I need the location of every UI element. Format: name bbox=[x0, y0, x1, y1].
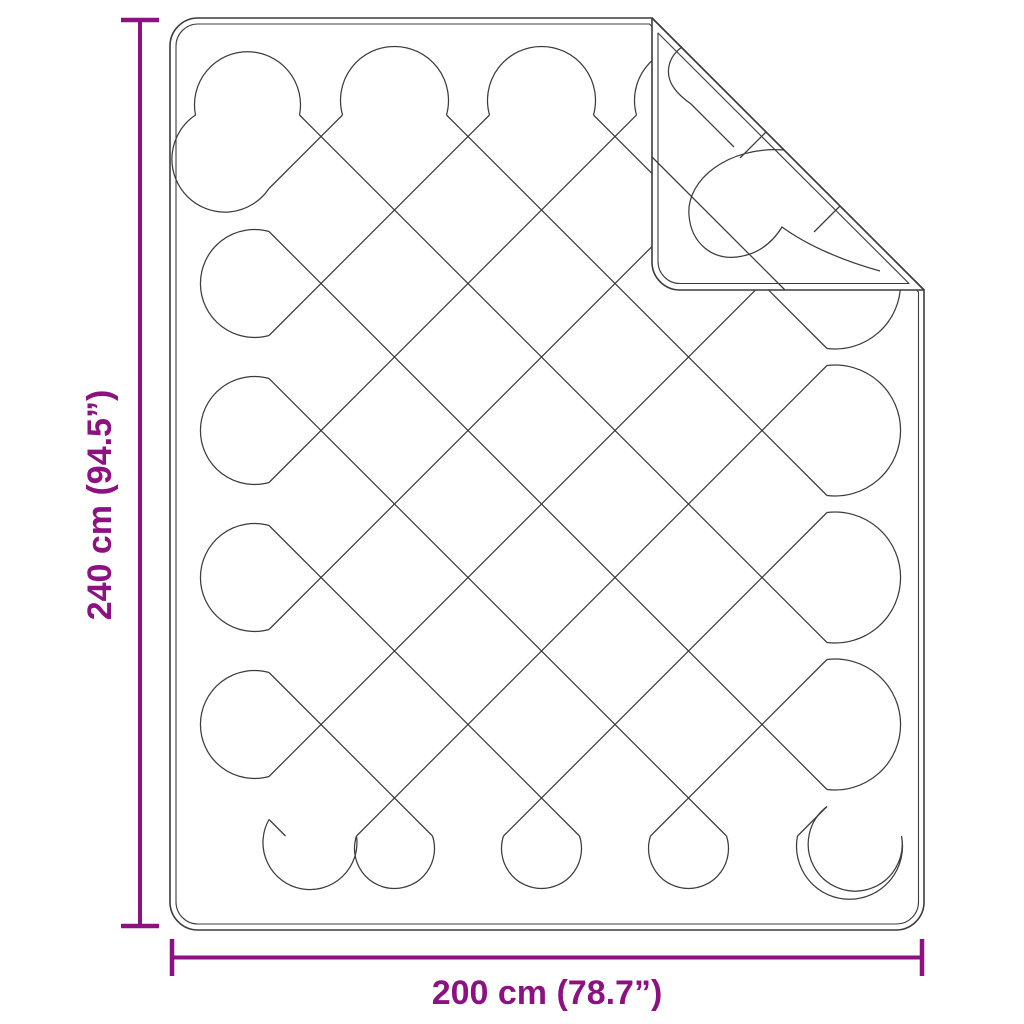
folded-corner-flap bbox=[652, 18, 924, 290]
width-dimension-label: 200 cm (78.7”) bbox=[432, 974, 663, 1012]
fold-crease-line bbox=[652, 18, 924, 290]
height-dimension-line bbox=[121, 20, 159, 926]
product-dimension-diagram: 240 cm (94.5”) 200 cm (78.7”) bbox=[0, 0, 1024, 1024]
width-dimension-line bbox=[172, 939, 922, 976]
blanket-diagram-canvas: 240 cm (94.5”) 200 cm (78.7”) bbox=[0, 0, 1024, 1024]
height-dimension-label: 240 cm (94.5”) bbox=[81, 390, 119, 621]
